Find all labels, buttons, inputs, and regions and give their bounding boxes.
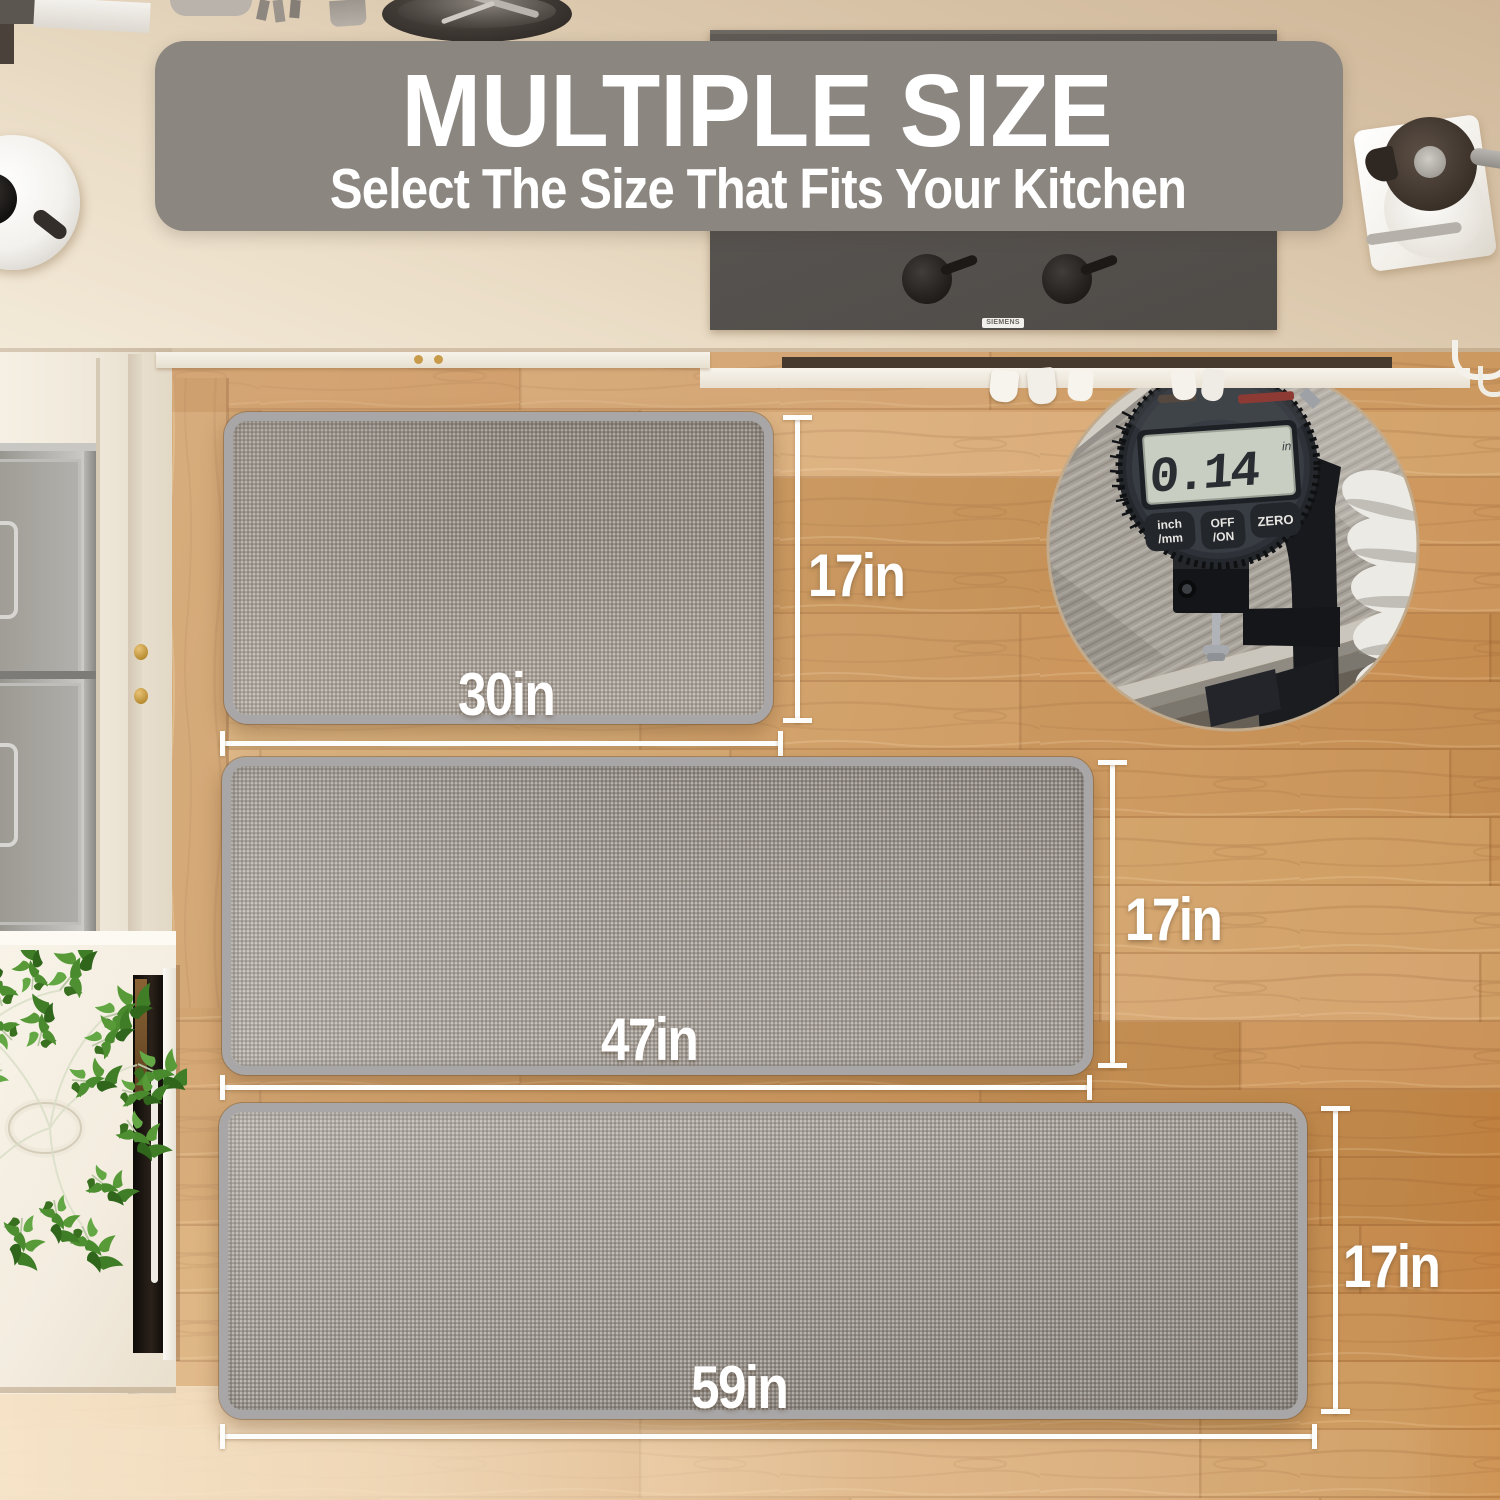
svg-text:0.14: 0.14 <box>1148 443 1261 508</box>
svg-text:/mm: /mm <box>1158 530 1184 546</box>
svg-text:in: in <box>1281 439 1292 454</box>
svg-text:ZERO: ZERO <box>1257 512 1294 529</box>
svg-text:/ON: /ON <box>1212 529 1234 544</box>
